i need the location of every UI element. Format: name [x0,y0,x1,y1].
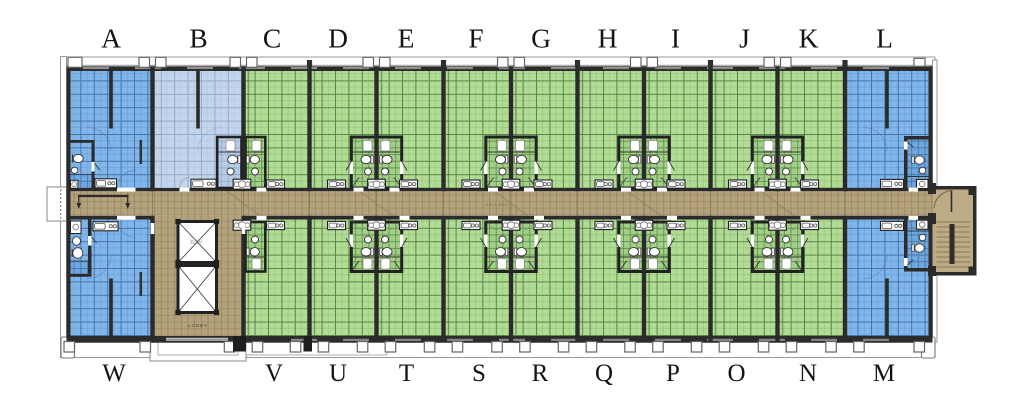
svg-text:Q: Q [595,360,613,387]
svg-text:R: R [532,360,549,387]
svg-text:F: F [468,23,483,54]
svg-text:V: V [265,360,283,387]
svg-text:M: M [873,360,895,387]
svg-text:T: T [399,360,414,387]
svg-text:U: U [329,360,347,387]
svg-text:P: P [666,360,680,387]
svg-text:G: G [531,23,551,54]
svg-text:B: B [189,23,207,54]
svg-text:O: O [727,360,745,387]
svg-text:K: K [799,23,819,54]
svg-text:S: S [472,360,486,387]
svg-text:L: L [876,23,893,54]
svg-text:W: W [102,360,126,387]
svg-text:E: E [398,23,415,54]
svg-text:HALLWAY: HALLWAY [485,202,508,207]
svg-text:I: I [671,23,680,54]
svg-text:H: H [598,23,618,54]
svg-text:A: A [101,23,121,54]
svg-text:LOBBY: LOBBY [188,323,208,329]
svg-text:N: N [799,360,817,387]
svg-text:J: J [739,23,750,54]
svg-text:ELEV.: ELEV. [190,240,202,245]
svg-text:C: C [263,23,281,54]
svg-text:D: D [328,23,348,54]
